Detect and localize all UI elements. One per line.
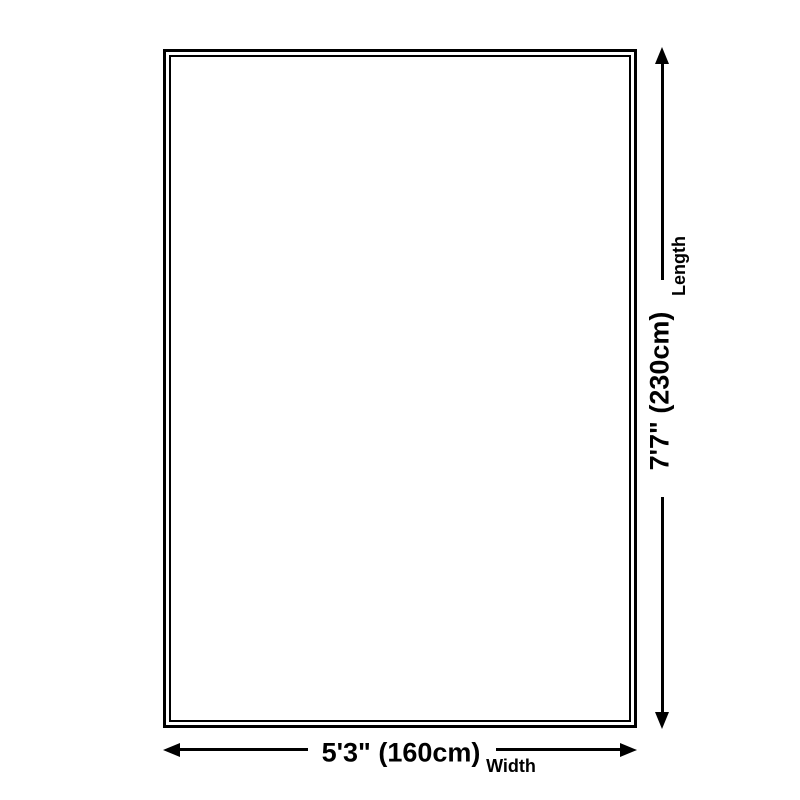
length-arrow-top-segment — [661, 61, 664, 280]
arrow-right-icon — [620, 743, 637, 757]
length-label: Length — [670, 236, 688, 296]
size-diagram: Length 7'7" (230cm) 5'3" (160cm) Width — [0, 0, 800, 800]
rug-outline-outer — [163, 49, 637, 728]
width-arrow-left-segment — [177, 748, 308, 751]
rug-outline-inner — [169, 55, 631, 722]
width-label: Width — [486, 757, 536, 775]
length-value: 7'7" (230cm) — [647, 312, 674, 471]
width-value: 5'3" (160cm) — [322, 740, 481, 767]
length-arrow-bottom-segment — [661, 497, 664, 714]
width-arrow-right-segment — [496, 748, 621, 751]
arrow-down-icon — [655, 712, 669, 729]
